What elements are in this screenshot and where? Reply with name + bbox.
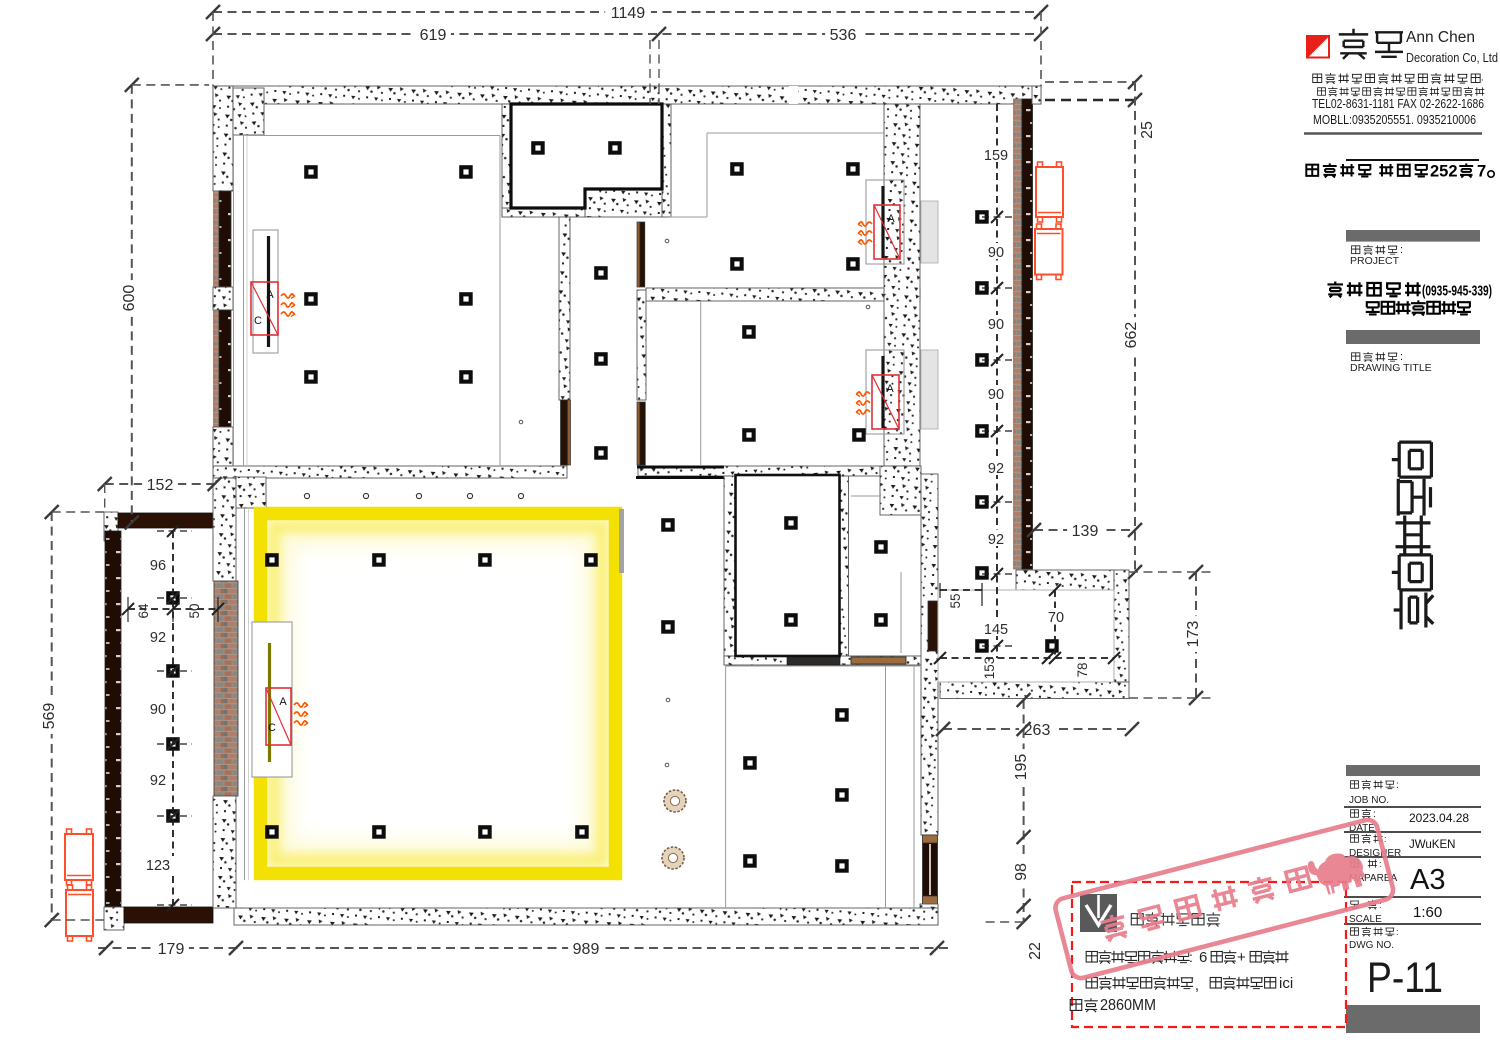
svg-text:92: 92 <box>988 461 1004 477</box>
svg-text:123: 123 <box>146 858 170 874</box>
svg-text:152: 152 <box>147 477 174 494</box>
svg-text:DWG NO.: DWG NO. <box>1349 940 1394 951</box>
svg-text:JOB NO.: JOB NO. <box>1349 795 1389 806</box>
svg-text:64: 64 <box>136 603 151 619</box>
svg-text:50: 50 <box>187 603 202 618</box>
svg-text:92: 92 <box>988 532 1004 548</box>
svg-text:252: 252 <box>1430 163 1458 181</box>
svg-text:DRAWING TITLE: DRAWING TITLE <box>1350 362 1432 374</box>
svg-text:6: 6 <box>1199 949 1207 966</box>
svg-text:1149: 1149 <box>611 5 646 22</box>
svg-text:145: 145 <box>984 622 1008 638</box>
svg-text:A: A <box>279 696 287 708</box>
svg-text:139: 139 <box>1072 523 1099 540</box>
svg-text:662: 662 <box>1123 322 1140 349</box>
svg-text:96: 96 <box>150 558 166 574</box>
svg-text:153: 153 <box>982 657 997 680</box>
svg-text::: : <box>1396 780 1399 791</box>
svg-text:TEL02-8631-1181 FAX 02-2622-16: TEL02-8631-1181 FAX 02-2622-1686 <box>1312 96 1484 111</box>
svg-text:92: 92 <box>150 630 166 646</box>
svg-text::: : <box>1384 834 1387 844</box>
svg-text:55: 55 <box>948 593 963 608</box>
svg-text:536: 536 <box>830 27 857 44</box>
svg-text:159: 159 <box>984 148 1008 164</box>
svg-text:78: 78 <box>1075 662 1090 677</box>
svg-text:A: A <box>887 213 895 225</box>
svg-text::: : <box>1396 927 1399 937</box>
svg-text:569: 569 <box>41 703 58 730</box>
svg-text:22: 22 <box>1027 942 1044 960</box>
svg-text:90: 90 <box>150 702 166 718</box>
svg-text:70: 70 <box>1048 610 1064 626</box>
svg-text:(0935-945-339): (0935-945-339) <box>1422 284 1492 300</box>
svg-text:7: 7 <box>1477 163 1486 181</box>
svg-text:C: C <box>268 722 276 734</box>
svg-text:JWuKEN: JWuKEN <box>1409 839 1455 851</box>
svg-text:600: 600 <box>121 285 138 312</box>
svg-text:195: 195 <box>1013 754 1030 781</box>
svg-text:+: + <box>1237 949 1246 966</box>
svg-text:A3: A3 <box>1410 864 1445 896</box>
svg-text:1:60: 1:60 <box>1413 904 1442 921</box>
svg-text::: : <box>1379 859 1382 869</box>
svg-text:173: 173 <box>1185 621 1202 648</box>
svg-text:,: , <box>1195 977 1199 994</box>
svg-text:92: 92 <box>150 773 166 789</box>
svg-text:2023.04.28: 2023.04.28 <box>1409 811 1469 825</box>
svg-text:989: 989 <box>573 941 600 958</box>
svg-text:P-11: P-11 <box>1367 954 1443 1002</box>
svg-text:2860MM: 2860MM <box>1100 997 1156 1014</box>
svg-text::: : <box>1400 244 1403 256</box>
svg-text:90: 90 <box>988 317 1004 333</box>
svg-text:179: 179 <box>158 941 185 958</box>
svg-text:619: 619 <box>420 27 447 44</box>
svg-text:A: A <box>266 289 274 301</box>
svg-text:98: 98 <box>1013 863 1030 881</box>
svg-text:Decoration Co, Ltd: Decoration Co, Ltd <box>1406 51 1498 65</box>
svg-text:90: 90 <box>988 387 1004 403</box>
svg-text:MOBLL:0935205551. 0935210006: MOBLL:0935205551. 0935210006 <box>1313 112 1476 127</box>
svg-text:·: · <box>1481 75 1484 86</box>
svg-text:90: 90 <box>988 245 1004 261</box>
svg-text:PROJECT: PROJECT <box>1350 255 1400 267</box>
svg-text:ici: ici <box>1279 975 1293 992</box>
svg-text:C: C <box>254 315 262 327</box>
svg-text:Ann Chen: Ann Chen <box>1406 29 1475 46</box>
svg-text:A: A <box>886 383 894 395</box>
svg-text:25: 25 <box>1139 121 1156 139</box>
svg-text::: : <box>1373 809 1376 820</box>
